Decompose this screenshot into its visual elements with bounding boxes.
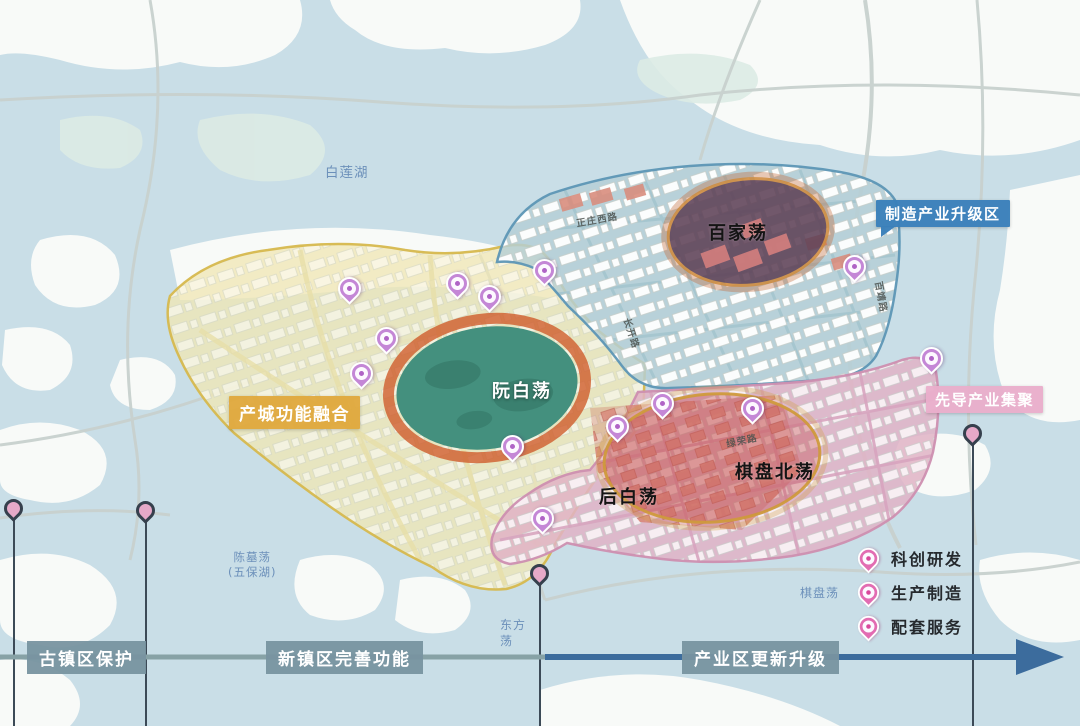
legend-item-services: 配套服务 [857, 609, 963, 643]
legend-item-manufacturing: 生产制造 [857, 575, 963, 609]
area-label-qipanbeidang: 棋盘北荡 [735, 458, 815, 484]
service-pin-icon [854, 611, 884, 641]
legend-item-research: 科创研发 [857, 541, 963, 575]
zone-tag-pioneer-cluster: 先导产业集聚 [926, 386, 1043, 413]
legend-label: 生产制造 [891, 580, 963, 604]
lake-label-chenmudang: 陈墓荡 (五保湖) [228, 550, 276, 580]
phase-tag-new-town: 新镇区完善功能 [266, 641, 423, 674]
area-label-baijiadang: 百家荡 [708, 219, 768, 245]
lake-label-dongfangdang: 东方 荡 [500, 618, 526, 649]
lake-label-qipandang: 棋盘荡 [800, 584, 839, 601]
area-label-houbaidang: 后白荡 [599, 483, 659, 509]
phase-tag-industry-zone: 产业区更新升级 [682, 641, 839, 674]
planning-map: 白莲湖 陈墓荡 (五保湖) 东方 荡 棋盘荡 正庄西路 长开路 百靖路 绿荣路 … [0, 0, 1080, 726]
zone-tag-manufacturing-upgrade: 制造产业升级区 [876, 200, 1010, 227]
lake-label-bailianhu: 白莲湖 [325, 161, 369, 181]
legend-label: 科创研发 [891, 546, 963, 570]
zone-tag-city-integration: 产城功能融合 [229, 396, 360, 429]
research-pin-icon [854, 543, 884, 573]
area-label-ruanbaidang: 阮白荡 [492, 377, 552, 403]
manufacturing-pin-icon [854, 577, 884, 607]
legend-label: 配套服务 [891, 614, 963, 638]
phase-tag-old-town: 古镇区保护 [27, 641, 146, 674]
legend: 科创研发 生产制造 配套服务 [857, 541, 963, 643]
